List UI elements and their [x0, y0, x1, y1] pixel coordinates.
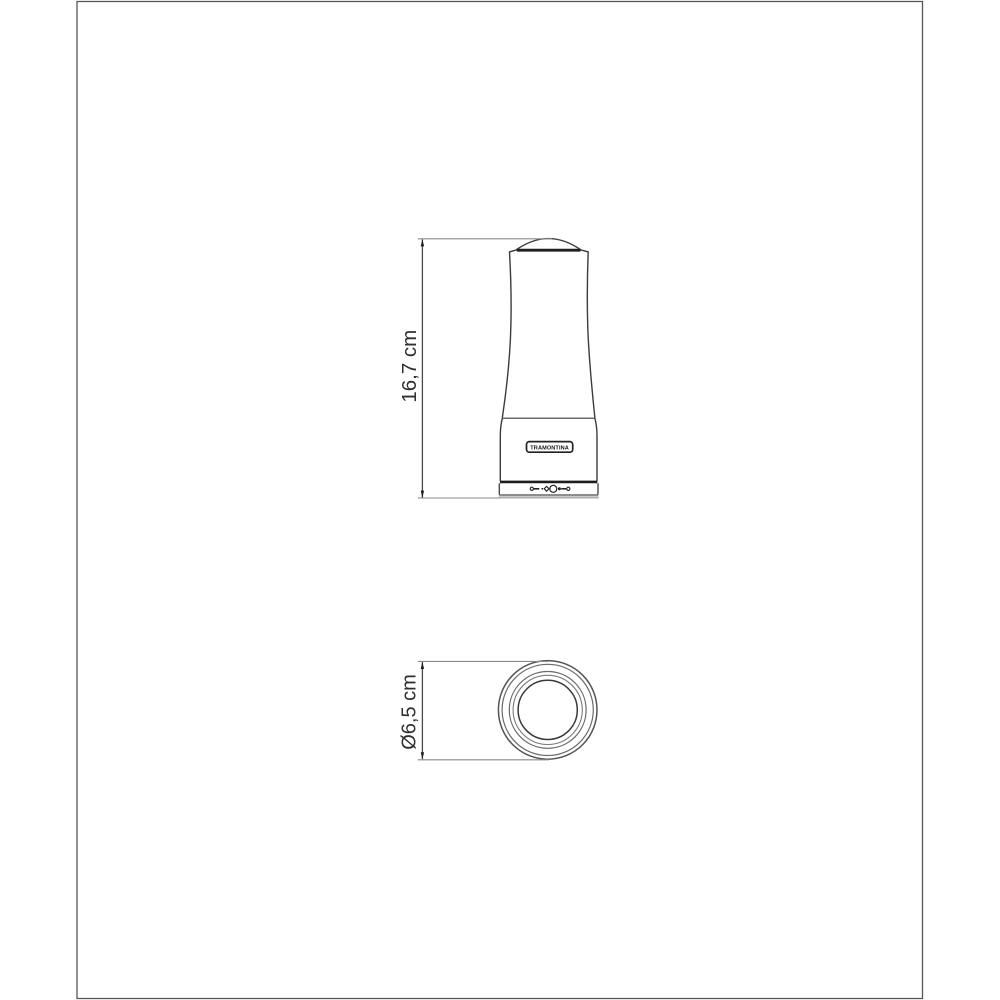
svg-text:Ø6,5 cm: Ø6,5 cm	[399, 674, 421, 750]
svg-text:TRAMONTINA: TRAMONTINA	[530, 445, 569, 451]
svg-text:16,7 cm: 16,7 cm	[398, 330, 421, 403]
